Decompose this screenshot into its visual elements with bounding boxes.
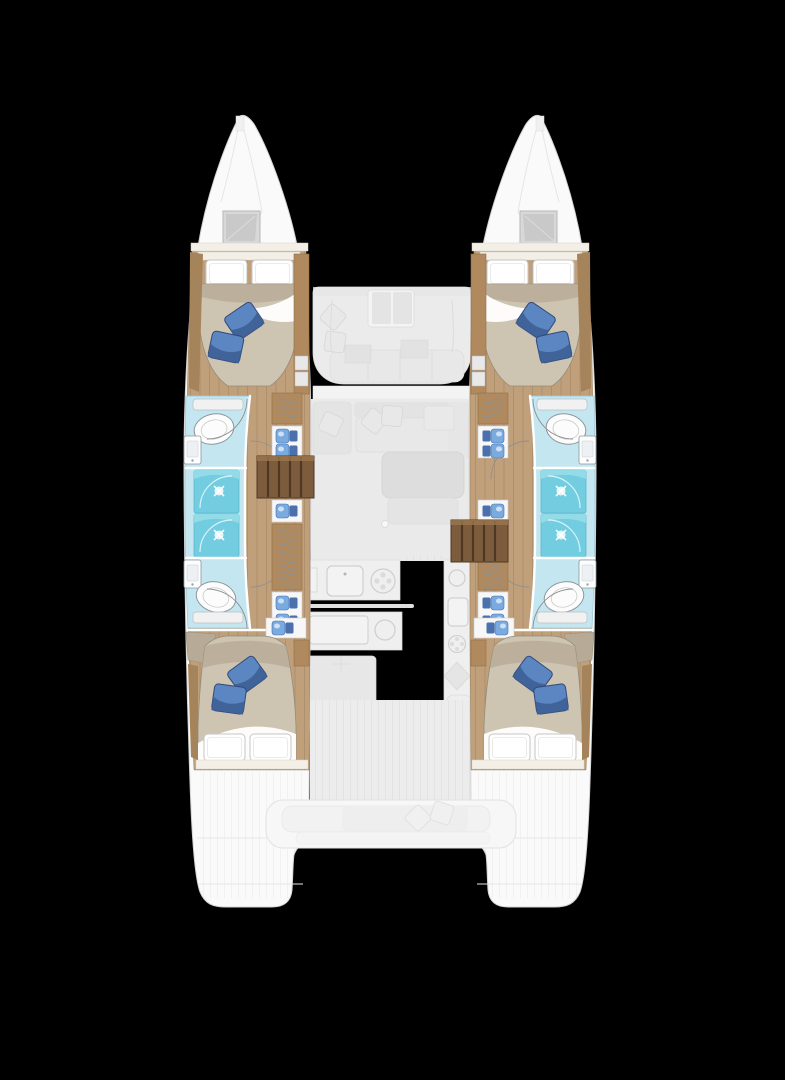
starboard-companionway-stairs bbox=[451, 520, 508, 562]
port-hull bbox=[184, 115, 311, 907]
bench-step bbox=[296, 832, 490, 844]
seat-cushion bbox=[372, 292, 391, 324]
seat-cushion bbox=[345, 345, 371, 363]
ghost-pillow bbox=[324, 331, 347, 354]
saloon bbox=[311, 399, 471, 561]
floor-plan-canvas bbox=[0, 0, 785, 1080]
sofa-bench bbox=[388, 498, 458, 524]
faucet bbox=[344, 573, 347, 576]
galley-sink bbox=[327, 566, 363, 596]
starboard-hull bbox=[469, 115, 596, 907]
table-leg bbox=[382, 521, 389, 528]
catamaran-floor-plan bbox=[0, 0, 785, 1080]
windshield bbox=[313, 386, 471, 399]
seat-cushion bbox=[401, 340, 428, 358]
prep-sink bbox=[310, 616, 368, 644]
seat-cushion bbox=[393, 292, 412, 324]
teak-aisle bbox=[404, 556, 444, 704]
galley-sink bbox=[448, 598, 468, 626]
port-companionway-stairs bbox=[257, 456, 314, 498]
aft-cockpit bbox=[310, 700, 472, 802]
seat-cushion bbox=[424, 406, 454, 430]
bridgedeck bbox=[302, 287, 472, 802]
saloon-table bbox=[382, 452, 464, 498]
handrail bbox=[302, 604, 414, 608]
aft-bench bbox=[266, 800, 516, 848]
ghost-pillow bbox=[381, 405, 403, 427]
forward-cockpit bbox=[313, 287, 471, 384]
